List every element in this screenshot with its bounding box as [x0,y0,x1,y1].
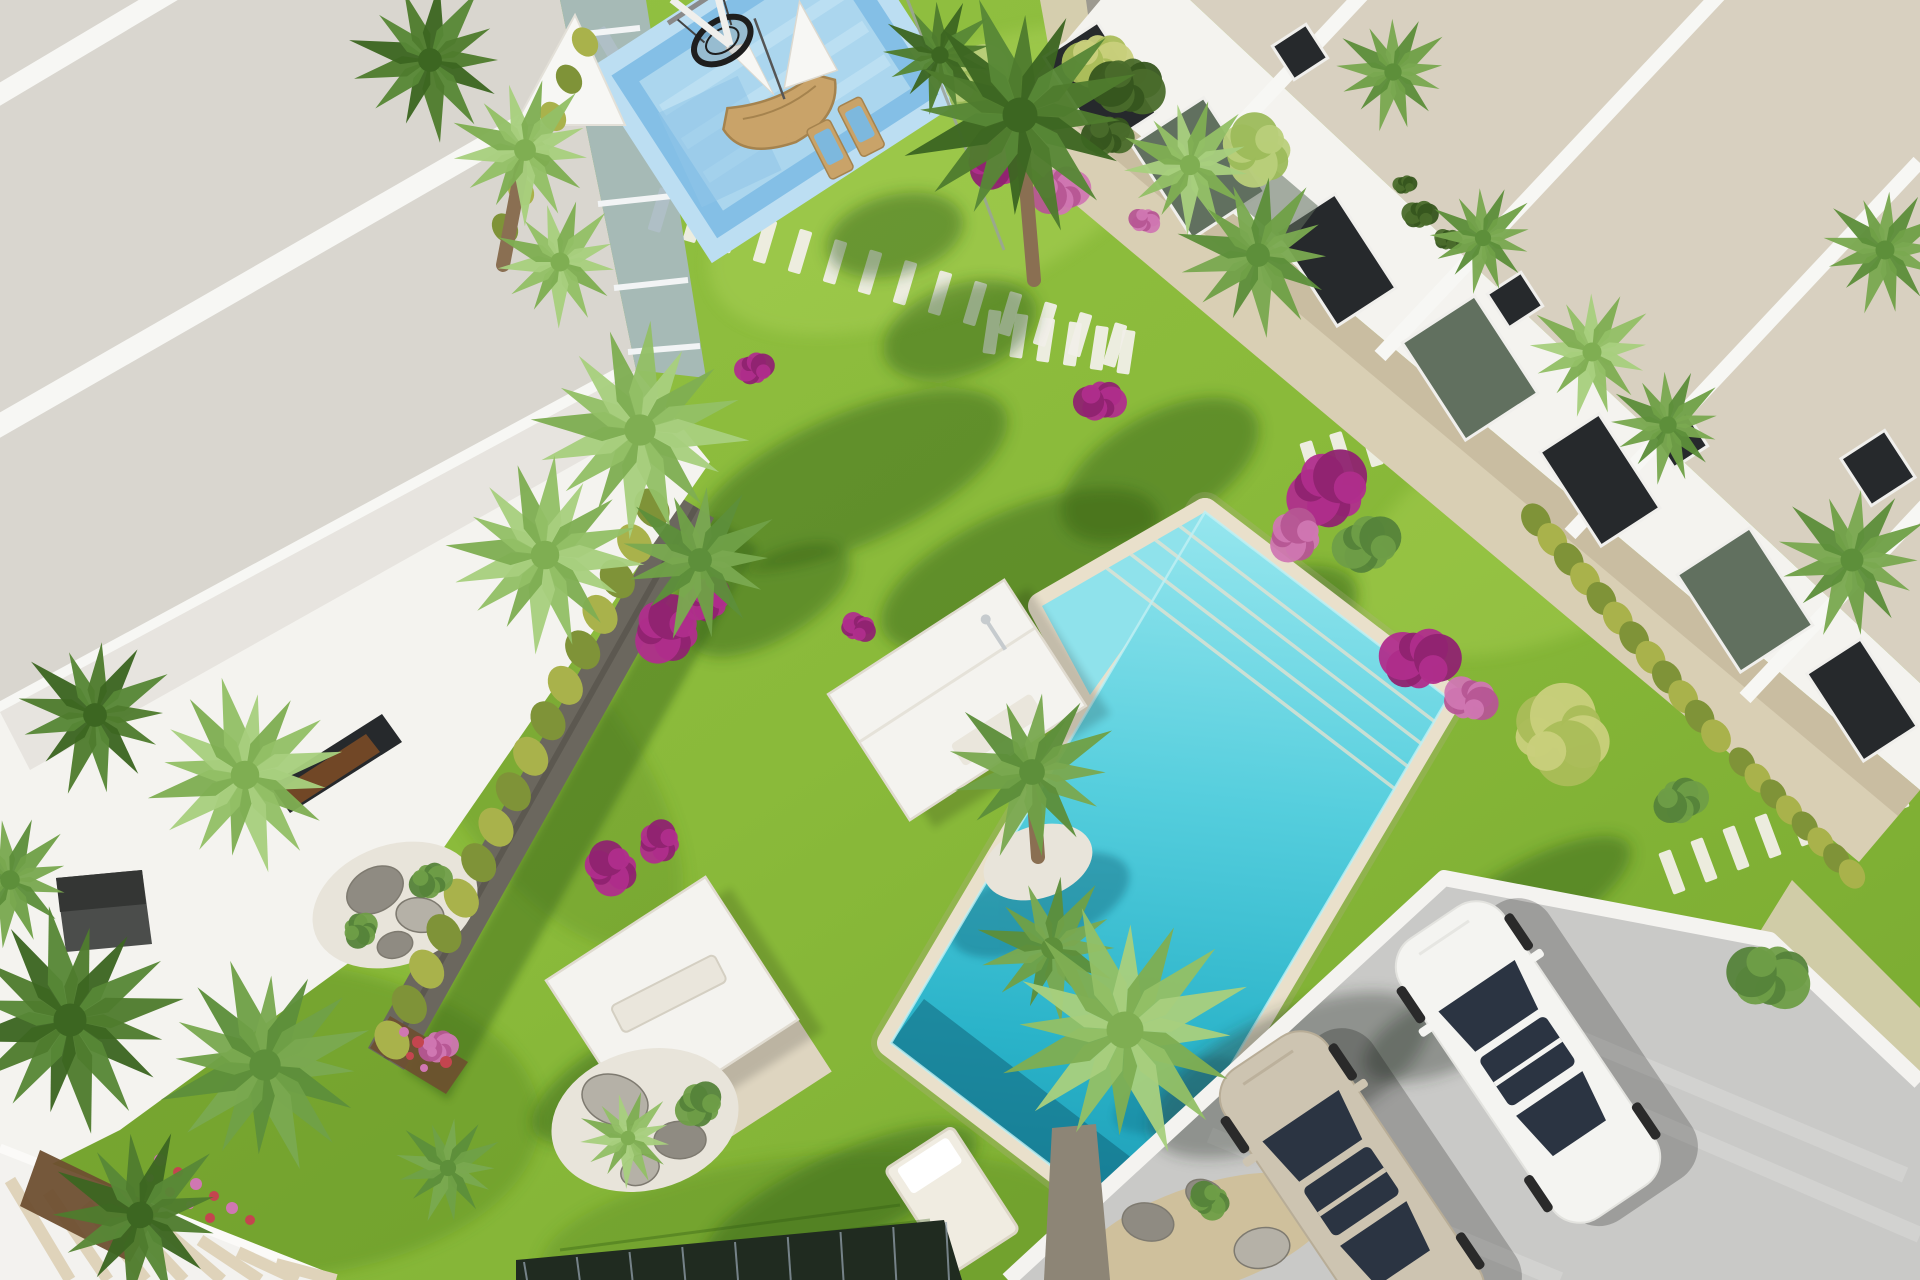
flower-dot [190,1178,202,1190]
palm-crown [127,1202,154,1229]
palm-crown [621,1131,636,1146]
flower-dot [420,1064,428,1072]
flower-dot [205,1213,215,1223]
bush-clump [1419,655,1448,684]
palm-crown [624,414,655,445]
flower-dot [406,1052,414,1060]
palm-crown [440,1160,456,1176]
bush-clump [1297,520,1319,542]
palm-crown [231,761,260,790]
palm-crown [1475,230,1491,246]
flower-dot [440,1056,452,1068]
bush-clump [1204,1185,1220,1201]
bush-clump [1405,183,1414,192]
palm-crown [550,252,569,271]
palm-crown [1582,342,1601,361]
bush-clump [1464,699,1484,719]
palm-crown [688,548,712,572]
flower-dot [209,1191,219,1201]
palm-crown [1384,63,1401,80]
palm-crown [514,139,536,161]
palm-crown [249,1049,280,1080]
palm-crown [1180,155,1200,175]
bush-clump [1658,788,1678,808]
aerial-site-render [0,0,1920,1280]
palm-crown [1246,243,1270,267]
bush-clump [608,848,630,870]
bush-clump [1255,125,1284,154]
flower-dot [412,1036,424,1048]
bush-clump [1419,213,1432,226]
palm-crown [1659,416,1676,433]
flower-dot [226,1202,238,1214]
bush-clump [413,870,429,886]
bush-clump [1082,385,1101,404]
bush-clump [702,1094,721,1113]
aerial-render-viewport [0,0,1920,1280]
bush-clump [756,364,770,378]
flower-dot [399,1027,409,1037]
palm-crown [83,703,107,727]
bush-clump [1136,209,1148,221]
palm-crown [531,541,560,570]
palm-crown [1019,759,1045,785]
bush-clump [1746,947,1776,977]
bush-clump [853,628,866,641]
bush-clump [1527,731,1567,771]
palm-crown [1107,1012,1144,1049]
palm-crown [1003,98,1038,133]
bush-clump [1371,535,1396,560]
flower-dot [245,1215,255,1225]
bush-clump [660,829,677,846]
palm-crown [53,1003,86,1036]
bush-clump [1334,471,1366,503]
palm-crown [418,48,442,72]
palm-crown [0,870,20,890]
bush-clump [345,926,359,940]
palm-crown [1841,549,1864,572]
palm-crown [931,46,948,63]
palm-crown [1875,240,1894,259]
flower-dot [427,1047,437,1057]
